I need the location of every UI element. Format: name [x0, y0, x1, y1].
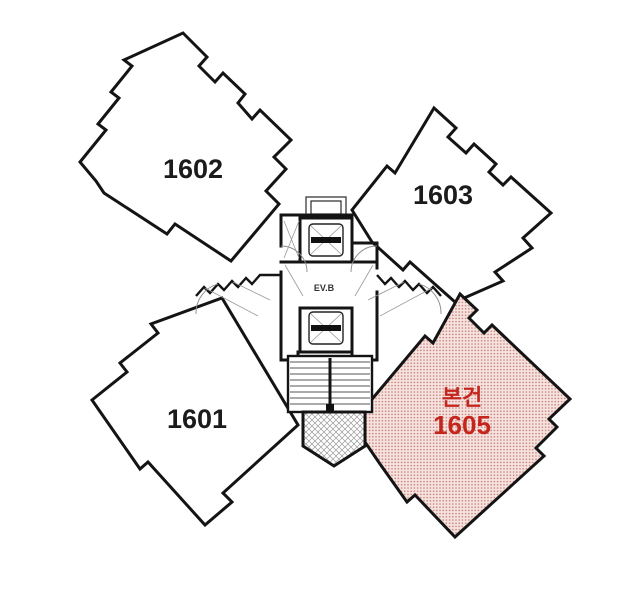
elevator-shaft-middle: [300, 308, 352, 352]
elevator-shaft-top: [300, 218, 352, 262]
stairs: [288, 356, 372, 412]
core-label: EV.B: [314, 283, 335, 293]
entrance-zigzag-left: [196, 275, 281, 296]
unit-1602-label: 1602: [163, 154, 223, 184]
unit-1601-label: 1601: [167, 404, 227, 434]
lobby-crosshatch: [303, 412, 365, 466]
subject-property-tag: 본건: [442, 385, 482, 410]
floor-plan-canvas: 1602 1603 1601 본건 1605 EV.B: [0, 0, 637, 600]
floor-plan: 1602 1603 1601 본건 1605 EV.B: [0, 0, 637, 600]
unit-1603-label: 1603: [413, 180, 473, 210]
unit-1602-outline: [80, 33, 291, 261]
unit-1605-label: 1605: [433, 410, 491, 440]
